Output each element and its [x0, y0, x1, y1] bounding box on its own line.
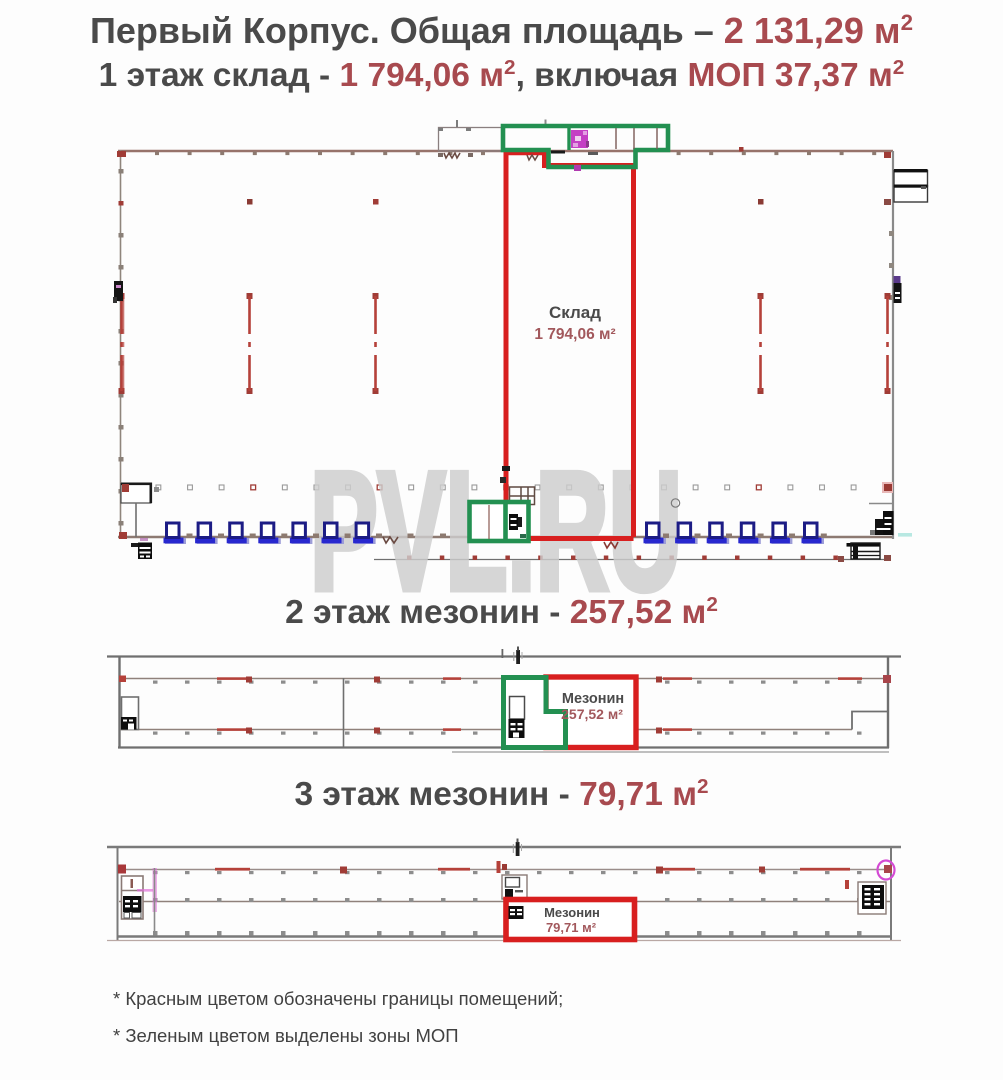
svg-text:Мезонин: Мезонин: [544, 905, 600, 920]
svg-text:257,52 м²: 257,52 м²: [561, 706, 623, 722]
svg-text:79,71 м²: 79,71 м²: [546, 920, 597, 935]
svg-text:1 794,06 м²: 1 794,06 м²: [534, 326, 615, 343]
svg-text:Мезонин: Мезонин: [562, 691, 624, 707]
svg-text:Склад: Склад: [549, 303, 601, 322]
